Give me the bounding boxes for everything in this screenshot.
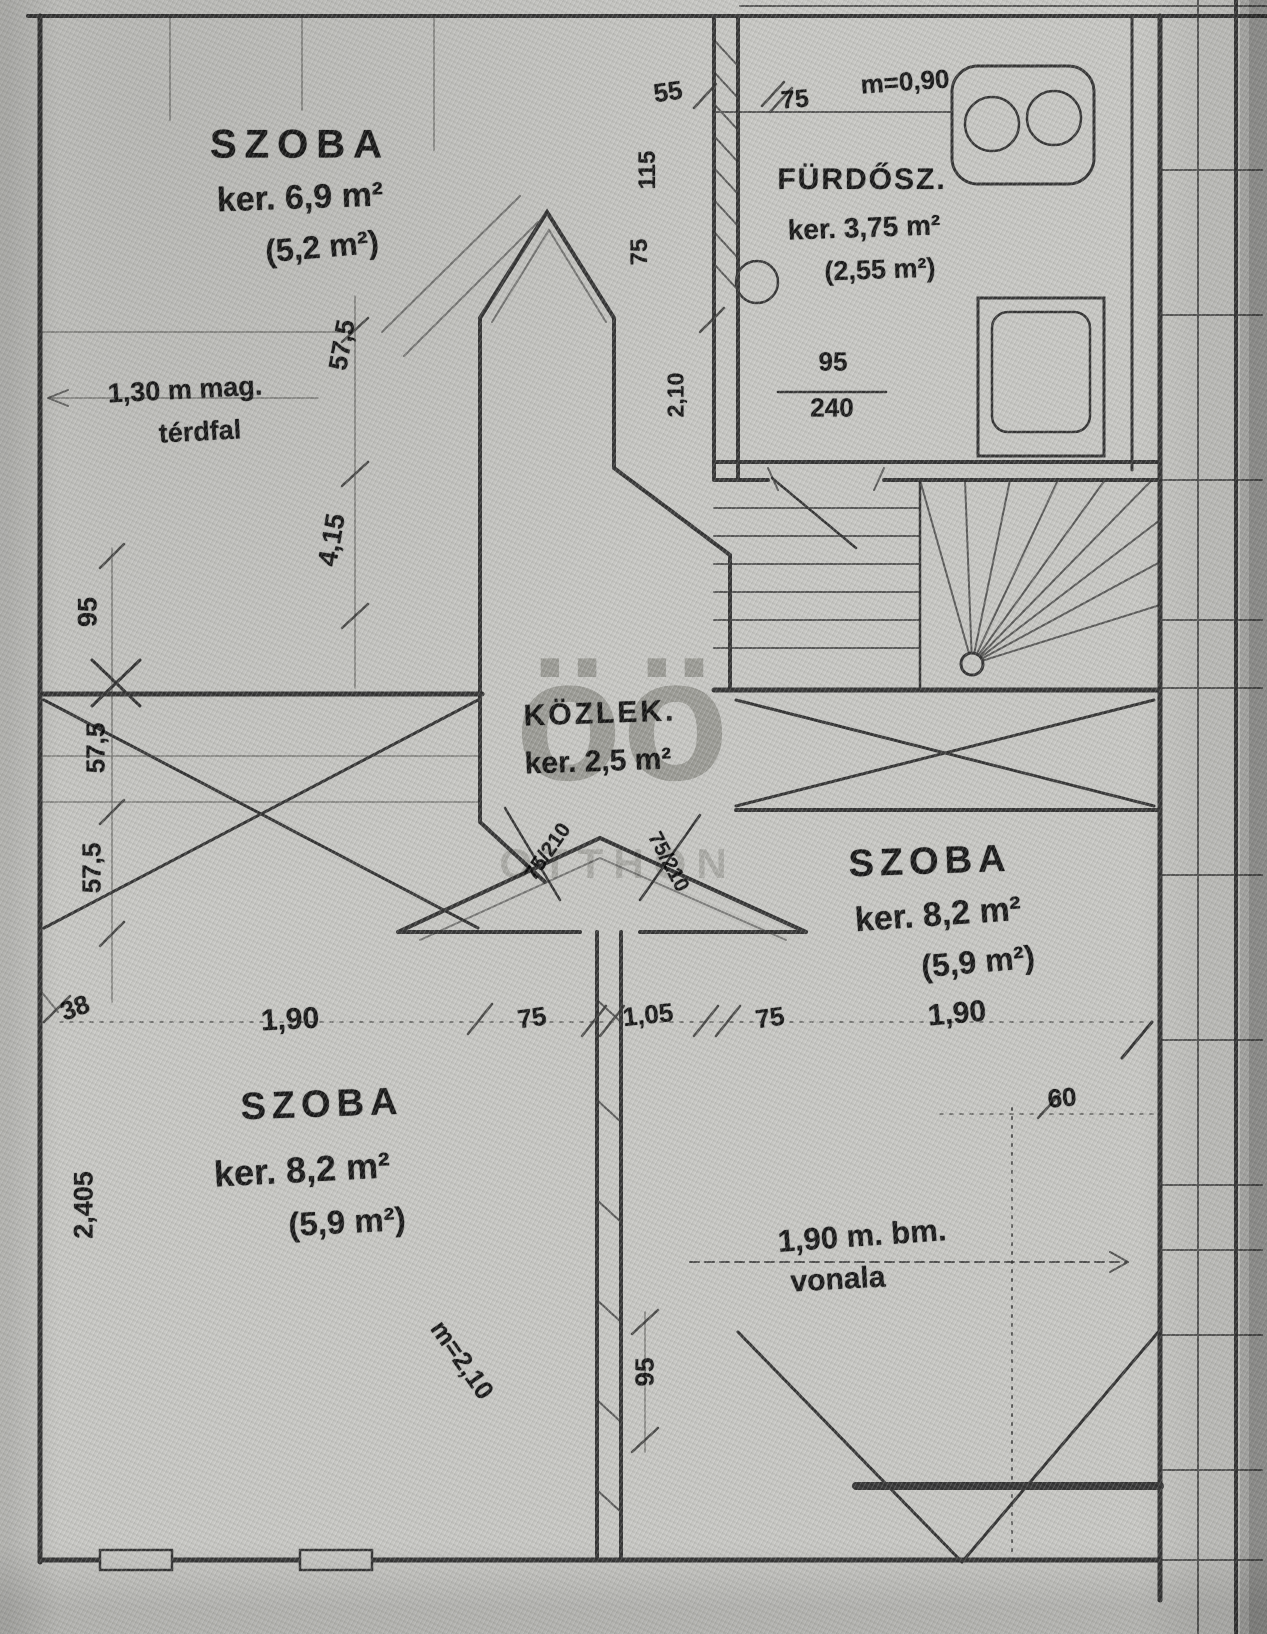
room-bottom-left-net: (5,9 m²) — [287, 1200, 406, 1244]
dim-row-190-right: 1,90 — [926, 995, 987, 1034]
room-hall-name: KÖZLEK. — [523, 694, 677, 733]
room-bottom-left-name: SZOBA — [240, 1081, 404, 1130]
note-parapet-height: m=0,90 — [860, 63, 951, 100]
dim-top-55: 55 — [652, 75, 685, 110]
dim-top-75: 75 — [780, 84, 810, 115]
room-bathroom-gross: ker. 3,75 m² — [787, 209, 941, 246]
dim-left-575-b: 57,5 — [77, 843, 108, 894]
dim-left-575-a: 57,5 — [81, 723, 112, 774]
room-top-left-gross: ker. 6,9 m² — [216, 176, 384, 221]
room-bathroom-name: FÜRDŐSZ. — [777, 163, 946, 197]
dim-top-115: 115 — [634, 151, 662, 190]
dim-right-60: 60 — [1046, 1081, 1078, 1114]
note-knee-wall-line2: térdfal — [158, 414, 242, 449]
dim-row-105: 1,05 — [621, 997, 675, 1033]
dim-bottom-95: 95 — [630, 1358, 661, 1387]
note-height-line2: vonala — [790, 1261, 887, 1300]
dim-top-75-vertical: 75 — [626, 239, 654, 266]
dim-row-75-a: 75 — [516, 1001, 549, 1036]
dim-row-75-b: 75 — [754, 1001, 787, 1036]
dim-left-2405: 2,405 — [69, 1171, 100, 1239]
scanned-floorplan-page: öö OTTHON SZOBA ker. 6,9 m² (5,2 m²) FÜR… — [0, 0, 1267, 1634]
dim-bath-door-height: 240 — [810, 393, 853, 424]
room-right-name: SZOBA — [848, 838, 1012, 887]
dim-bath-door-clear: 2,10 — [663, 373, 690, 418]
room-bathroom-net: (2,55 m²) — [824, 253, 936, 288]
room-hall-gross: ker. 2,5 m² — [524, 742, 672, 781]
dim-row-190-left: 1,90 — [260, 1001, 320, 1038]
room-top-left-name: SZOBA — [210, 123, 390, 168]
dim-bath-door-width: 95 — [819, 347, 848, 378]
dim-left-95: 95 — [73, 597, 104, 627]
